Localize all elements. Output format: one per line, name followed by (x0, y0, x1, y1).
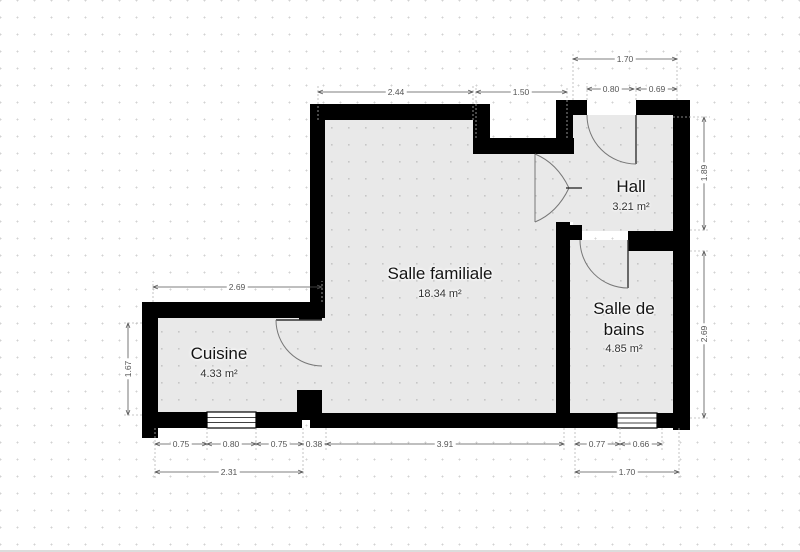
wall-cuisine-top[interactable] (142, 302, 325, 318)
floorplan-canvas: Salle familiale 18.34 m² Hall 3.21 m² Sa… (0, 0, 800, 552)
wall-family-left[interactable] (310, 104, 325, 318)
wall-family-bottom[interactable] (310, 413, 556, 428)
room-area: 4.33 m² (191, 368, 248, 380)
dim-hall-total-width: 1.70 (615, 54, 636, 65)
dim-hall-right-wall: 0.69 (647, 84, 668, 95)
dim-recess-width: 1.50 (511, 87, 532, 98)
room-floor-hall[interactable] (573, 115, 673, 231)
room-label-hall[interactable]: Hall 3.21 m² (612, 177, 649, 213)
window-cuisine[interactable] (207, 412, 256, 428)
wall-bath-bottom-left[interactable] (556, 413, 617, 428)
dim-bath-bottom-left: 0.77 (587, 439, 608, 450)
dim-cuisine-top-width: 2.69 (227, 282, 248, 293)
wall-family-right[interactable] (556, 222, 570, 428)
dim-cuisine-bottom-left: 0.75 (171, 439, 192, 450)
wall-hall-top-left[interactable] (556, 100, 587, 115)
room-label-salle-familiale[interactable]: Salle familiale 18.34 m² (388, 264, 493, 300)
dim-family-bottom-width: 3.91 (435, 439, 456, 450)
wall-bath-bottom-right[interactable] (657, 413, 690, 428)
room-name: Salle familiale (388, 264, 493, 285)
dim-cuisine-bottom-right: 0.75 (269, 439, 290, 450)
wall-hall-bath-right[interactable] (628, 231, 673, 251)
dim-cuisine-window-width: 0.80 (221, 439, 242, 450)
room-name: Salle de bains (581, 299, 667, 340)
room-name: Hall (612, 177, 649, 198)
wall-cuisine-bottom-right[interactable] (256, 412, 302, 428)
wall-pillar[interactable] (297, 390, 322, 420)
dim-cuisine-total-width: 2.31 (219, 467, 240, 478)
dim-hall-height: 1.89 (699, 163, 710, 184)
wall-family-top[interactable] (310, 104, 475, 120)
room-area: 4.85 m² (581, 343, 667, 355)
room-label-salle-de-bains[interactable]: Salle de bains 4.85 m² (581, 299, 667, 355)
wall-right-outer[interactable] (673, 100, 690, 430)
doorway-cuisine-family[interactable] (299, 320, 322, 390)
dim-partition-width: 0.38 (304, 439, 325, 450)
window-salle-de-bains[interactable] (617, 413, 657, 428)
dim-family-top-width: 2.44 (386, 87, 407, 98)
wall-cuisine-bottom-left[interactable] (142, 412, 207, 428)
room-area: 18.34 m² (388, 288, 493, 300)
dim-bath-total-width: 1.70 (617, 467, 638, 478)
room-area: 3.21 m² (612, 201, 649, 213)
room-label-cuisine[interactable]: Cuisine 4.33 m² (191, 344, 248, 380)
dim-hall-door-width: 0.80 (601, 84, 622, 95)
dim-cuisine-height: 1.67 (123, 359, 134, 380)
room-name: Cuisine (191, 344, 248, 365)
dim-bath-height: 2.69 (699, 324, 710, 345)
dim-bath-window-width: 0.66 (631, 439, 652, 450)
